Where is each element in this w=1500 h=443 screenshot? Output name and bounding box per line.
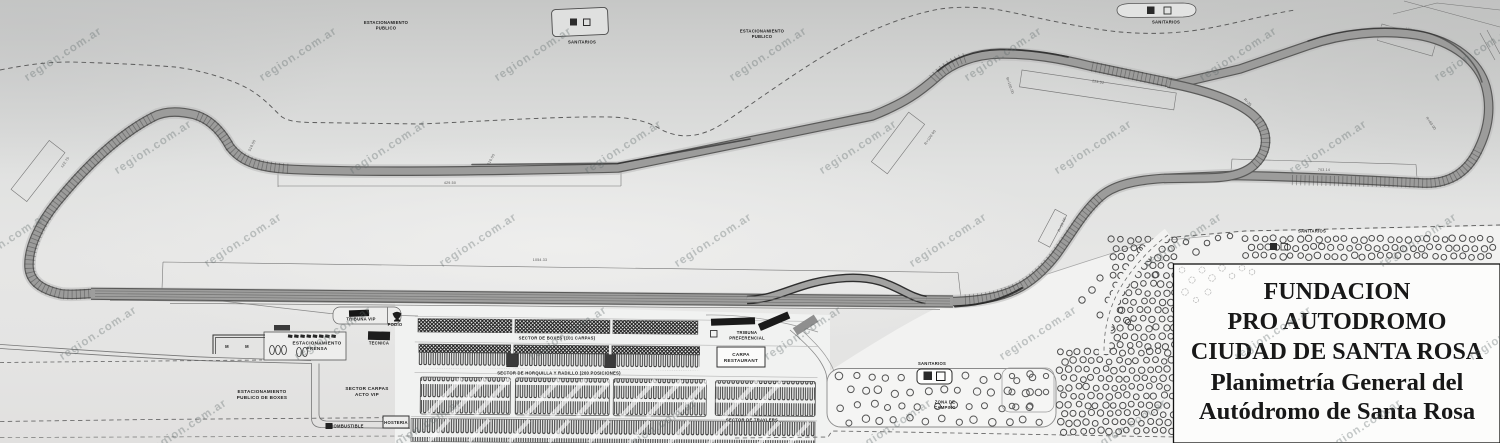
svg-text:1054.33: 1054.33 <box>533 258 547 262</box>
svg-text:TRIBUNA: TRIBUNA <box>737 330 758 335</box>
svg-text:SECTOR DE HORQUILLA Y RADILLO: SECTOR DE HORQUILLA Y RADILLO (200 POSIC… <box>497 371 621 376</box>
svg-text:M: M <box>225 344 229 349</box>
svg-text:TECNICA: TECNICA <box>369 341 389 346</box>
svg-text:RESTAURANT: RESTAURANT <box>724 358 758 363</box>
svg-text:COMBUSTIBLE: COMBUSTIBLE <box>330 424 363 429</box>
svg-text:Planimetría General del: Planimetría General del <box>1211 369 1464 396</box>
svg-text:PODIO: PODIO <box>388 322 403 327</box>
svg-text:FUNDACION: FUNDACION <box>1264 279 1411 305</box>
svg-text:ESTACIONAMIENTO: ESTACIONAMIENTO <box>364 20 409 25</box>
svg-text:Autódromo de Santa Rosa: Autódromo de Santa Rosa <box>1199 398 1475 425</box>
svg-text:PUBLICO: PUBLICO <box>376 26 397 31</box>
svg-text:CARPA: CARPA <box>732 352 750 357</box>
svg-text:PUBLICO DE BOXES: PUBLICO DE BOXES <box>237 395 288 400</box>
svg-text:SECTOR CARPAS: SECTOR CARPAS <box>345 386 388 391</box>
svg-text:ZONA DE: ZONA DE <box>935 400 955 405</box>
svg-text:CAMPING: CAMPING <box>934 405 956 410</box>
svg-text:SANITARIOS: SANITARIOS <box>568 40 596 45</box>
svg-text:ESTACIONAMIENTO: ESTACIONAMIENTO <box>238 389 287 394</box>
svg-text:HOSTERIA: HOSTERIA <box>384 420 408 425</box>
svg-text:PREFERENCIAL: PREFERENCIAL <box>729 336 765 341</box>
svg-text:SECTOR DE TRAYLERS: SECTOR DE TRAYLERS <box>726 418 778 423</box>
svg-text:SANITARIOS: SANITARIOS <box>918 361 946 366</box>
svg-text:ACTO VIP: ACTO VIP <box>355 392 379 397</box>
svg-text:M: M <box>245 344 249 349</box>
svg-text:SANITARIOS: SANITARIOS <box>1152 20 1180 25</box>
svg-text:PRO AUTODROMO: PRO AUTODROMO <box>1228 309 1447 335</box>
svg-text:PUBLICO: PUBLICO <box>752 34 773 39</box>
svg-text:429.50: 429.50 <box>444 181 456 185</box>
svg-text:ESTACIONAMIENTO: ESTACIONAMIENTO <box>740 29 785 34</box>
svg-text:SANITARIOS: SANITARIOS <box>1298 229 1326 234</box>
